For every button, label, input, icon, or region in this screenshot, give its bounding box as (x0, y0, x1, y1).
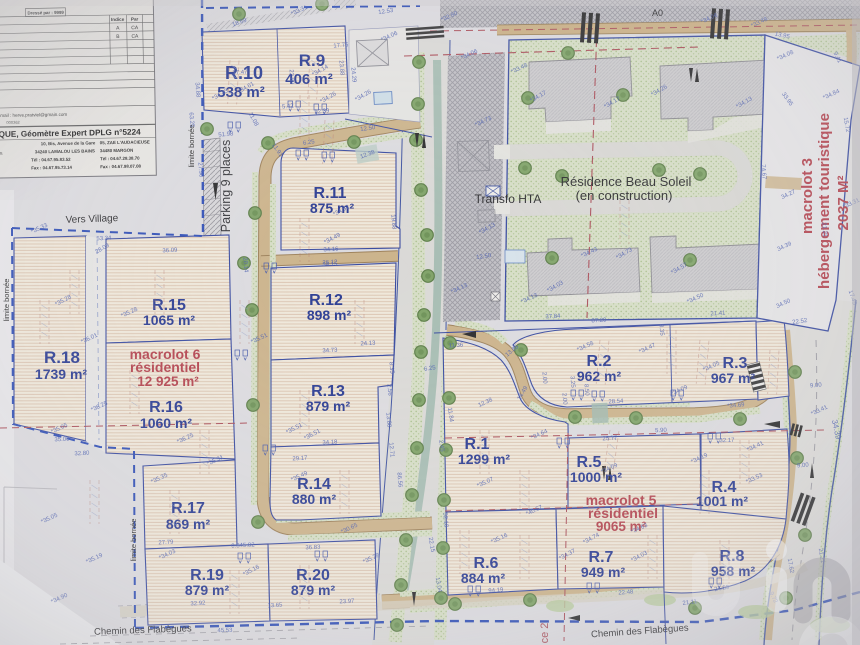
svg-text:Tél : 04.67.28.38.70: Tél : 04.67.28.38.70 (100, 156, 140, 162)
svg-text:29.17: 29.17 (292, 456, 308, 463)
svg-text:A0: A0 (652, 8, 663, 18)
svg-text:Dressé par : 9999: Dressé par : 9999 (27, 10, 64, 16)
svg-text:macrolot 3: macrolot 3 (799, 158, 816, 234)
svg-text:32.92: 32.92 (190, 601, 206, 608)
svg-text:967 m²: 967 m² (711, 370, 756, 386)
svg-text:9.00: 9.00 (797, 462, 810, 469)
svg-text:32.80: 32.80 (74, 451, 90, 458)
svg-text:R.16: R.16 (149, 399, 183, 416)
svg-text:Parking 9 places: Parking 9 places (219, 140, 233, 232)
svg-text:879 m²: 879 m² (185, 582, 230, 598)
svg-text:CA: CA (131, 34, 139, 40)
svg-text:28.54: 28.54 (608, 399, 624, 406)
svg-text:Vers Village: Vers Village (65, 213, 118, 226)
svg-text:Indice: Indice (111, 17, 125, 22)
svg-text:05, ZAE L'AUDACIEUSE: 05, ZAE L'AUDACIEUSE (100, 139, 150, 145)
svg-text:(en construction): (en construction) (576, 188, 673, 203)
svg-text:37.47: 37.47 (232, 70, 248, 77)
svg-text:limite bornée: limite bornée (187, 125, 196, 168)
svg-text:21.41: 21.41 (710, 311, 726, 318)
svg-text:32.17: 32.17 (719, 438, 735, 445)
svg-text:Par: Par (131, 17, 139, 22)
svg-text:24.13: 24.13 (360, 341, 376, 348)
svg-text:8.35: 8.35 (387, 362, 394, 375)
svg-text:11.36: 11.36 (449, 343, 465, 350)
svg-text:R.17: R.17 (171, 500, 205, 517)
svg-text:34.18: 34.18 (322, 440, 338, 447)
svg-text:22.69: 22.69 (288, 69, 295, 85)
svg-text:0.845.82: 0.845.82 (231, 542, 255, 549)
svg-text:34.16: 34.16 (323, 247, 339, 254)
svg-text:10, Bis, Avenue de la Gare: 10, Bis, Avenue de la Gare (41, 140, 96, 146)
svg-text:ce 2: ce 2 (539, 623, 551, 644)
svg-text:5.90: 5.90 (655, 428, 668, 434)
svg-text:hébergement touristique: hébergement touristique (816, 113, 833, 289)
svg-text:53.34: 53.34 (96, 236, 112, 243)
svg-text:2.00: 2.00 (560, 393, 567, 406)
svg-text:1299 m²: 1299 m² (458, 451, 510, 467)
svg-text:880 m²: 880 m² (292, 491, 337, 507)
svg-text:limite bornée: limite bornée (129, 519, 138, 562)
svg-text:R.18: R.18 (44, 348, 80, 367)
svg-text:2.56: 2.56 (385, 384, 392, 397)
svg-text:2.00: 2.00 (540, 372, 547, 385)
svg-text:Transfo HTA: Transfo HTA (475, 192, 542, 206)
svg-text:000362: 000362 (6, 120, 20, 125)
svg-text:949 m²: 949 m² (581, 564, 626, 580)
svg-text:1001 m²: 1001 m² (696, 493, 748, 509)
svg-text:résidentiel: résidentiel (130, 359, 200, 375)
svg-text:CA: CA (131, 25, 139, 31)
svg-text:34.73: 34.73 (322, 348, 338, 355)
svg-text:26.12: 26.12 (322, 260, 338, 267)
svg-text:3.25: 3.25 (568, 376, 575, 389)
svg-text:1065 m²: 1065 m² (143, 312, 195, 328)
svg-text:limite bornée: limite bornée (2, 279, 11, 322)
svg-text:8.35: 8.35 (657, 324, 664, 337)
svg-text:36.09: 36.09 (162, 248, 178, 255)
svg-text:AS: AS (0, 151, 3, 156)
svg-text:898 m²: 898 m² (307, 307, 352, 323)
svg-text:36.83: 36.83 (305, 545, 321, 552)
svg-text:962 m²: 962 m² (577, 368, 622, 384)
svg-text:23.97: 23.97 (339, 599, 355, 606)
svg-text:45.53: 45.53 (217, 628, 233, 635)
svg-text:27.79: 27.79 (158, 540, 174, 547)
svg-text:879 m²: 879 m² (306, 398, 351, 414)
svg-text:Tél : 04.67.95.83.52: Tél : 04.67.95.83.52 (31, 157, 71, 163)
svg-text:8.50: 8.50 (582, 384, 589, 397)
svg-text:13.65: 13.65 (267, 603, 283, 610)
svg-text:12 925 m²: 12 925 m² (137, 374, 199, 389)
svg-text:35.06: 35.06 (54, 437, 70, 444)
svg-text:Fax : 04.67.98.07.08: Fax : 04.67.98.07.08 (100, 164, 141, 170)
svg-text:87.20: 87.20 (591, 318, 607, 325)
svg-text:1739 m²: 1739 m² (35, 366, 87, 382)
svg-text:5.42: 5.42 (282, 103, 295, 110)
svg-text:37.84: 37.84 (545, 314, 561, 321)
svg-text:1060 m²: 1060 m² (140, 415, 192, 431)
svg-text:869 m²: 869 m² (166, 516, 211, 532)
svg-text:9.00: 9.00 (810, 382, 823, 389)
svg-text:34480 MARGON: 34480 MARGON (100, 148, 134, 154)
svg-text:879 m²: 879 m² (291, 582, 336, 598)
svg-text:25.77: 25.77 (602, 436, 618, 443)
svg-text:1000 m²: 1000 m² (570, 469, 622, 485)
svg-text:884 m²: 884 m² (461, 570, 506, 586)
svg-text:Résidence Beau Soleil: Résidence Beau Soleil (561, 174, 692, 189)
svg-text:34240 LAMALOU LES BAINS: 34240 LAMALOU LES BAINS (35, 148, 95, 154)
svg-text:Fax : 04.67.95.73.14: Fax : 04.67.95.73.14 (31, 165, 72, 171)
